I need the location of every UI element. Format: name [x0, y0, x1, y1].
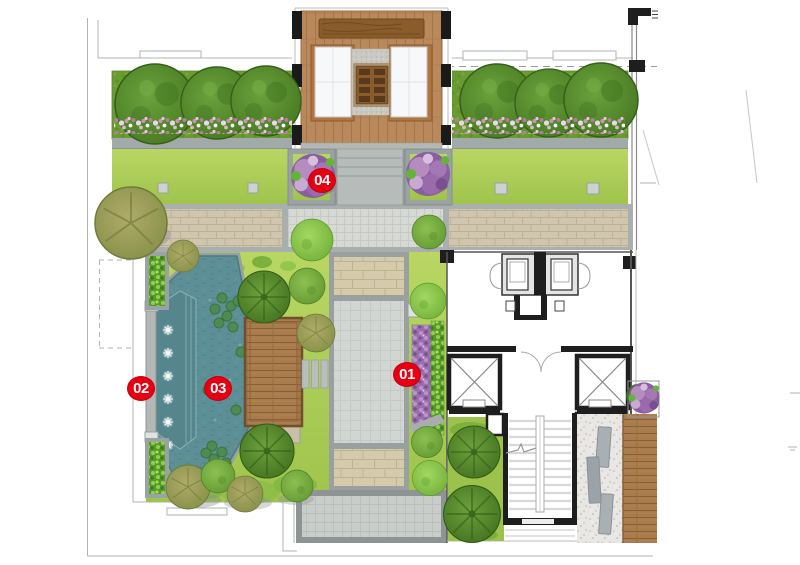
tree-icon: [448, 426, 500, 478]
tree-icon: [291, 219, 333, 261]
tree-icon: [411, 426, 442, 457]
pavilion-panel-right: [389, 45, 432, 121]
tree-icon: [289, 268, 325, 304]
landscape-plan: 01 02 03 04: [0, 0, 800, 565]
plan-marker-02[interactable]: 02: [127, 376, 155, 401]
plan-marker-01[interactable]: 01: [393, 362, 421, 387]
tree-icon: [95, 187, 167, 259]
tree-icon: [410, 283, 446, 319]
plan-marker-03[interactable]: 03: [204, 376, 232, 401]
lawn-right: [447, 149, 628, 204]
lawn-pad: [587, 183, 599, 194]
fountain-wall: [145, 301, 158, 442]
flower-border-left: [114, 117, 292, 134]
plan-marker-04[interactable]: 04: [308, 168, 336, 193]
elevator-shaft-left: [449, 356, 500, 408]
tree-icon: [238, 271, 290, 323]
lawn-pad: [158, 183, 168, 193]
lawn-pad: [248, 183, 258, 193]
timber-deck-strip: [623, 414, 657, 543]
tree-icon: [227, 476, 263, 512]
elevator-shaft-right: [577, 356, 628, 408]
lawn-pad: [495, 183, 507, 194]
plan-drawing: [0, 0, 800, 565]
shrub-planter-top: [145, 252, 169, 310]
gravel-terrace: [577, 414, 624, 543]
tree-icon: [167, 240, 199, 272]
entry-planter-right: [405, 149, 452, 205]
walkway-right-pavers: [449, 209, 628, 247]
fountain-pool: [152, 291, 196, 449]
walkway: [140, 204, 633, 252]
entry-steps: [333, 149, 407, 205]
wood-deck: [245, 318, 302, 426]
pavilion-panel-left: [311, 45, 354, 121]
pavilion: [292, 5, 452, 150]
pavilion-beam: [319, 19, 424, 38]
pavilion-table: [354, 64, 390, 106]
flower-shrub-icon: [406, 152, 450, 196]
tree-icon: [281, 470, 313, 502]
tree-icon: [297, 314, 335, 352]
tree-icon: [412, 215, 446, 249]
bench: [587, 457, 601, 504]
bench: [599, 494, 614, 535]
tree-icon: [444, 486, 501, 543]
stepping-slabs: [302, 360, 328, 388]
tree-icon: [240, 424, 294, 478]
flower-border-right: [451, 117, 625, 134]
shrub-planter-bottom: [145, 438, 169, 498]
tree-icon: [412, 460, 447, 495]
